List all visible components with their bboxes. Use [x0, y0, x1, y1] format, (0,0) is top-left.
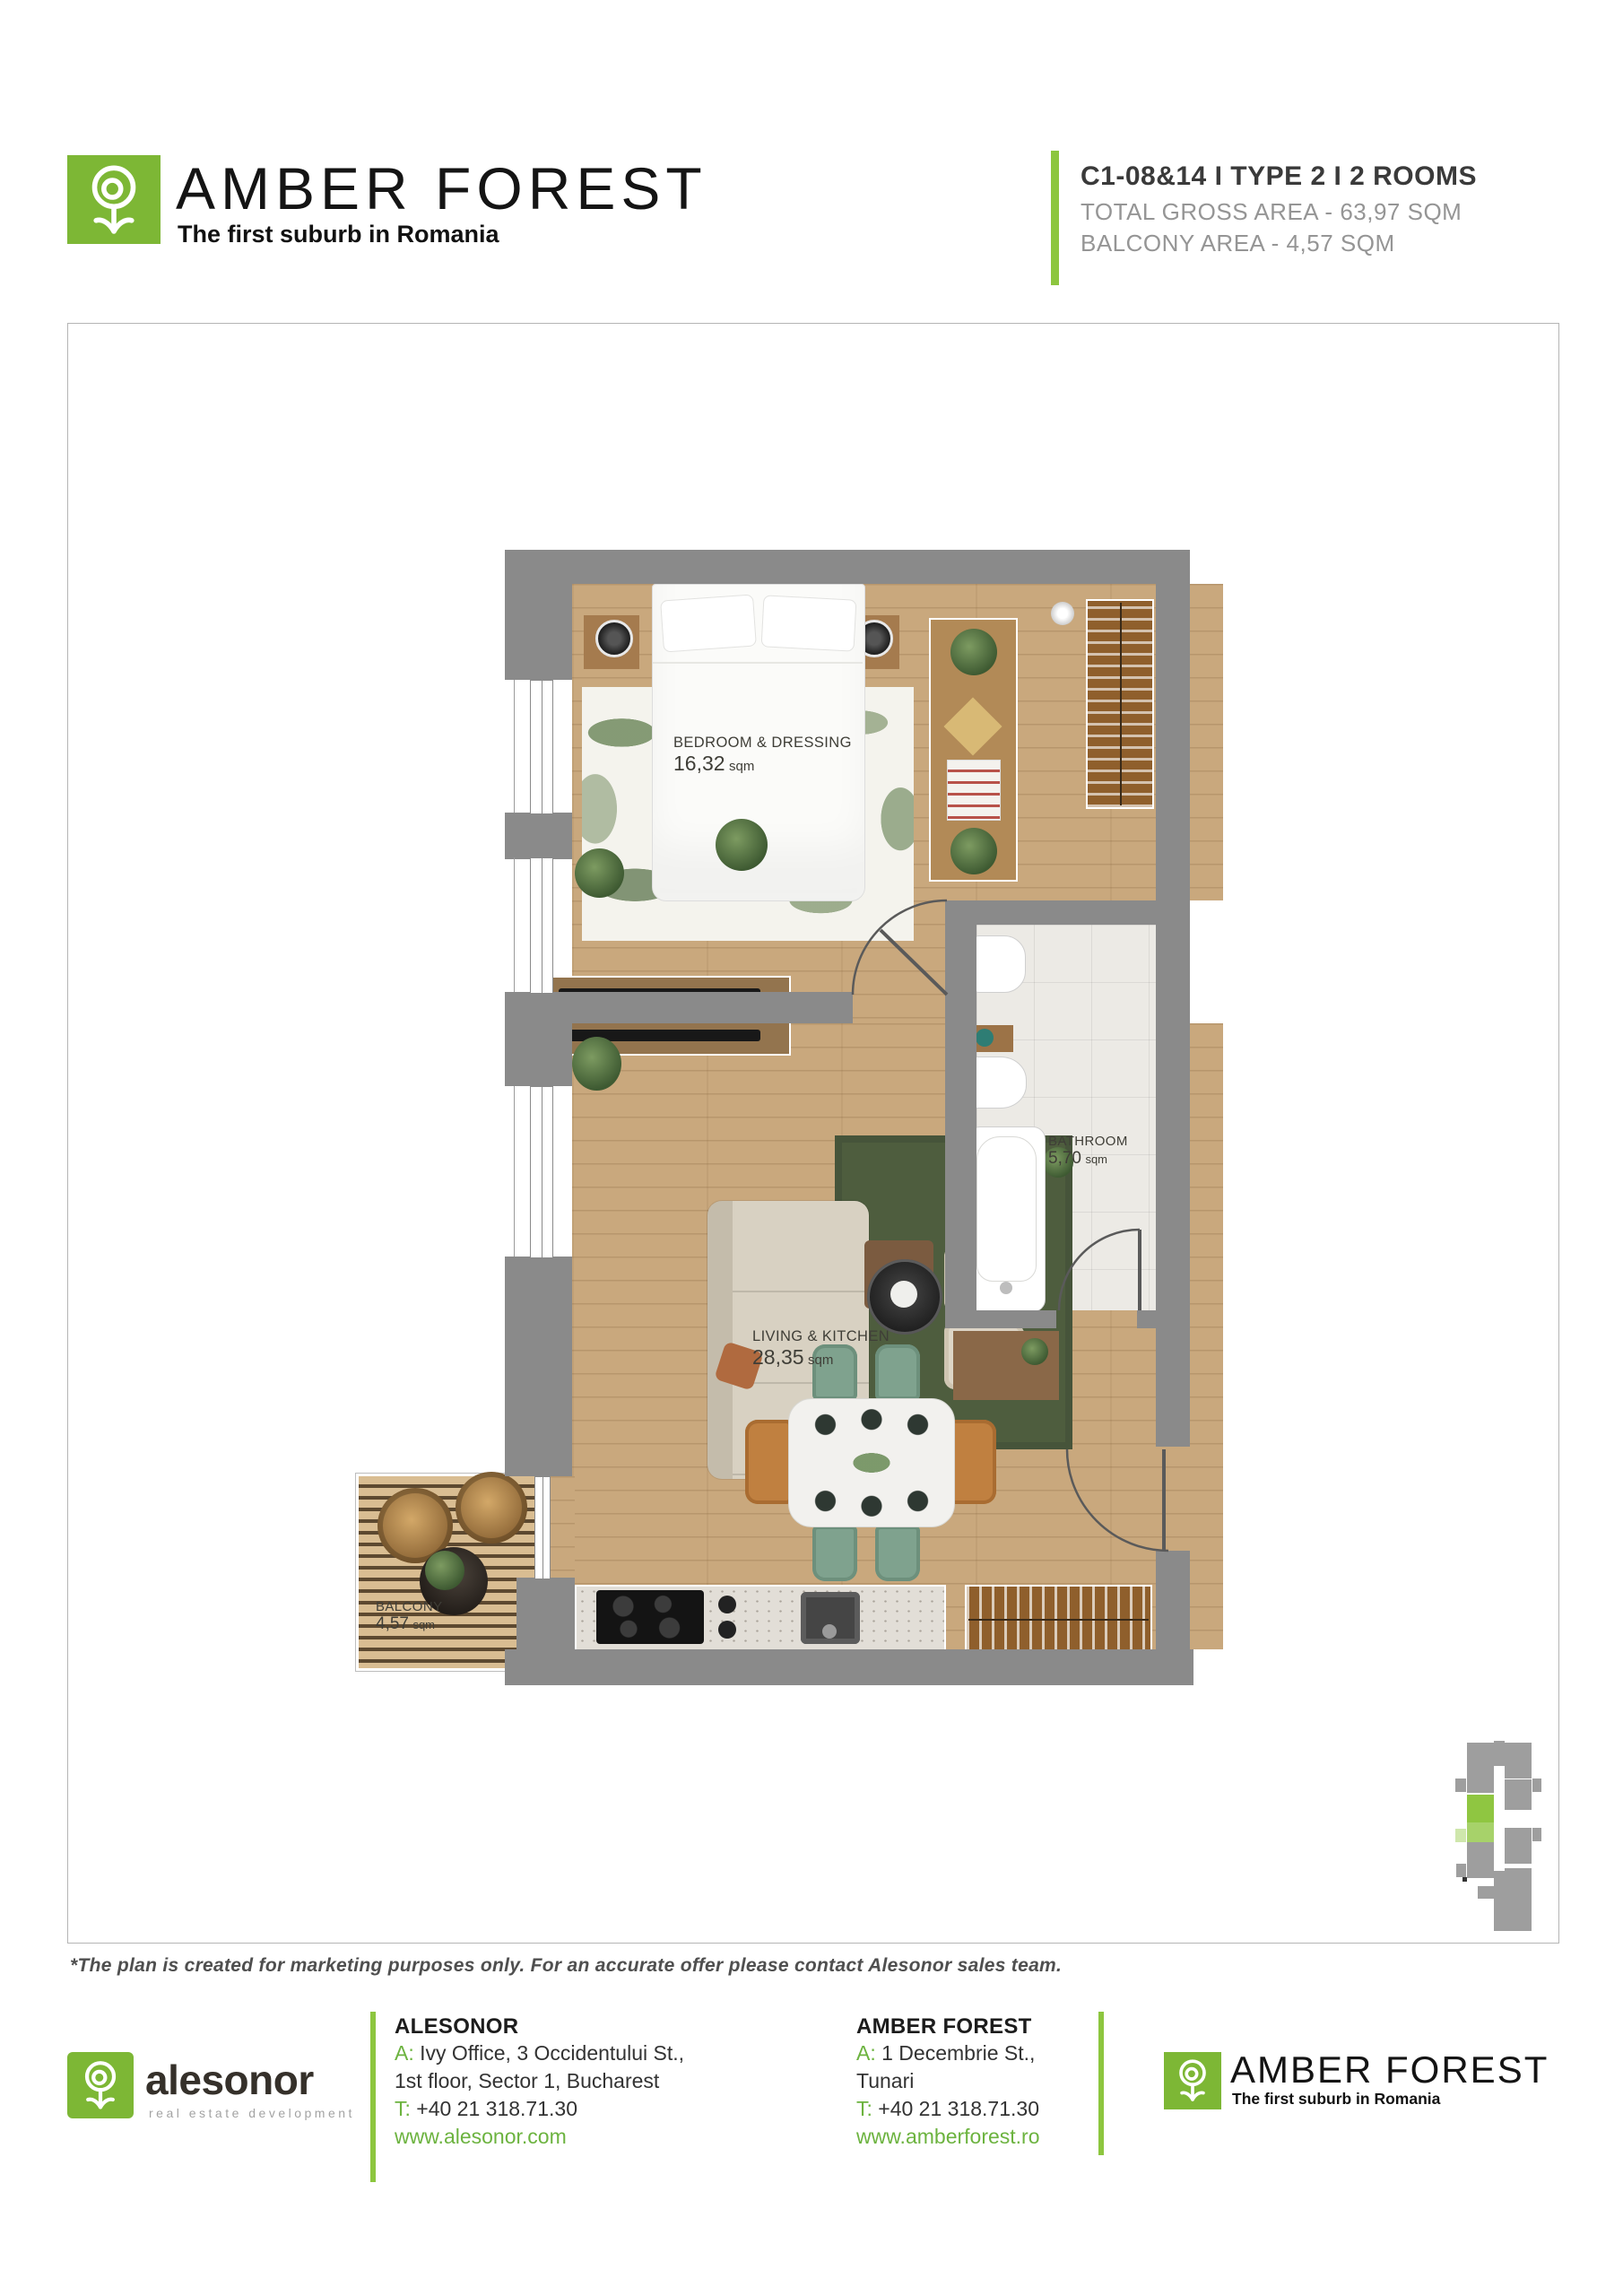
bedroom-label: BEDROOM & DRESSING 16,32 sqm — [673, 735, 852, 775]
alesonor-contact: ALESONOR A: Ivy Office, 3 Occidentului S… — [395, 2014, 717, 2151]
keyplan-block — [1532, 1828, 1541, 1841]
keyplan-block — [1505, 1900, 1532, 1931]
amber-forest-footer-logo — [1164, 2052, 1221, 2109]
footer-brand-title: AMBER FOREST — [1230, 2048, 1549, 2092]
keyplan-block — [1467, 1779, 1494, 1793]
keyplan-block — [1455, 1779, 1466, 1792]
living-label: LIVING & KITCHEN 28,35 sqm — [752, 1328, 890, 1369]
keyplan-block — [1532, 1779, 1541, 1792]
bedroom-area-unit: sqm — [729, 759, 754, 774]
keyplan-unit-highlight — [1467, 1795, 1494, 1842]
tree-logo-icon — [1169, 2056, 1216, 2107]
keyplan-block — [1505, 1743, 1532, 1779]
keyplan-block — [1467, 1864, 1494, 1878]
bathroom-door-arc — [1059, 1230, 1140, 1310]
amber-contact-heading: AMBER FOREST — [856, 2014, 1125, 2039]
bathroom-label: BATHROOM 5,70 sqm — [1048, 1134, 1128, 1169]
balcony-area-unit: sqm — [412, 1618, 435, 1631]
living-name: LIVING & KITCHEN — [752, 1328, 890, 1345]
amber-website-link[interactable]: www.amberforest.ro — [856, 2125, 1040, 2148]
bedroom-area: 16,32 — [673, 752, 725, 775]
amber-phone: +40 21 318.71.30 — [878, 2097, 1039, 2120]
floor-plan: BEDROOM & DRESSING 16,32 sqm LIVING & KI… — [67, 323, 1559, 1944]
alesonor-website-link[interactable]: www.alesonor.com — [395, 2125, 567, 2148]
keyplan-block — [1494, 1871, 1505, 1931]
tree-logo-icon — [75, 159, 152, 240]
keyplan-block — [1505, 1779, 1532, 1810]
brand-tagline: The first suburb in Romania — [178, 221, 499, 248]
bedroom-door-leaf — [881, 930, 947, 995]
bathroom-name: BATHROOM — [1048, 1134, 1128, 1149]
disclaimer: *The plan is created for marketing purpo… — [70, 1955, 1062, 1977]
balcony-area: 4,57 — [376, 1614, 409, 1633]
bathroom-area: 5,70 — [1048, 1149, 1081, 1168]
balcony-label: BALCONY 4,57 sqm — [376, 1599, 443, 1634]
amber-address-line1: 1 Decembrie St., — [881, 2041, 1035, 2065]
alesonor-address-line1: Ivy Office, 3 Occidentului St., — [420, 2041, 684, 2065]
unit-balcony-area: BALCONY AREA - 4,57 SQM — [1081, 230, 1395, 257]
keyplan-block — [1456, 1864, 1466, 1877]
keyplan-block — [1505, 1828, 1532, 1864]
living-area-unit: sqm — [808, 1352, 833, 1368]
door-swing-arcs — [68, 324, 1558, 1943]
address-prefix: A: — [395, 2041, 414, 2065]
phone-prefix: T: — [856, 2097, 872, 2120]
unit-info-accent-bar — [1051, 151, 1059, 285]
footer-divider — [1098, 2012, 1104, 2155]
address-prefix: A: — [856, 2041, 876, 2065]
amber-forest-logo — [67, 155, 161, 244]
entrance-door-arc — [1067, 1449, 1168, 1551]
amber-address-line2: Tunari — [856, 2067, 1125, 2095]
brand-title: AMBER FOREST — [176, 154, 707, 222]
alesonor-contact-heading: ALESONOR — [395, 2014, 717, 2039]
keyplan-balcony-highlight — [1455, 1829, 1466, 1842]
alesonor-address-line2: 1st floor, Sector 1, Bucharest — [395, 2067, 717, 2095]
footer-brand-tagline: The first suburb in Romania — [1232, 2090, 1440, 2109]
unit-title: C1-08&14 I TYPE 2 I 2 ROOMS — [1081, 161, 1477, 192]
footer-divider — [370, 2012, 376, 2182]
bathroom-area-unit: sqm — [1085, 1152, 1107, 1166]
bedroom-name: BEDROOM & DRESSING — [673, 735, 852, 752]
alesonor-wordmark: alesonor — [145, 2059, 314, 2100]
keyplan-marker — [1462, 1877, 1467, 1882]
alesonor-phone: +40 21 318.71.30 — [416, 2097, 577, 2120]
tree-logo-icon — [74, 2057, 127, 2115]
keyplan-block — [1467, 1842, 1494, 1864]
living-area: 28,35 — [752, 1345, 804, 1369]
unit-gross-area: TOTAL GROSS AREA - 63,97 SQM — [1081, 198, 1462, 226]
keyplan-block — [1478, 1886, 1494, 1899]
amber-contact: AMBER FOREST A: 1 Decembrie St., Tunari … — [856, 2014, 1125, 2151]
keyplan-block — [1467, 1743, 1494, 1779]
building-key-plan — [1452, 1732, 1558, 1934]
keyplan-block — [1494, 1741, 1505, 1766]
alesonor-logo — [67, 2052, 134, 2118]
keyplan-block — [1505, 1868, 1532, 1900]
alesonor-subtitle: real estate development — [149, 2106, 355, 2120]
phone-prefix: T: — [395, 2097, 411, 2120]
balcony-name: BALCONY — [376, 1599, 443, 1614]
